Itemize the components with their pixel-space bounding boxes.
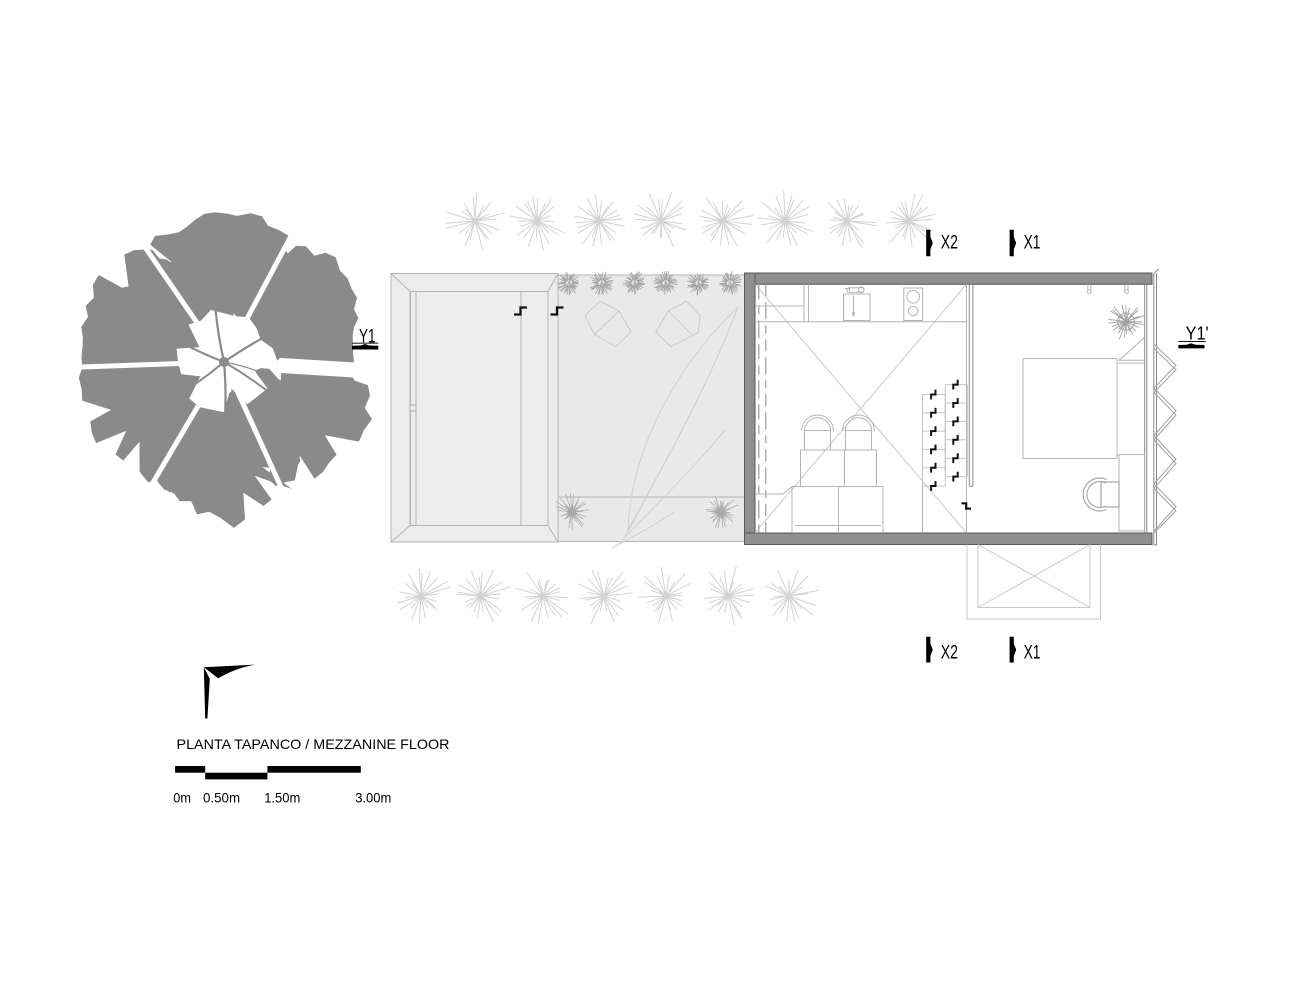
svg-text:X2: X2 — [941, 642, 958, 663]
svg-text:Y1': Y1' — [1186, 323, 1209, 344]
svg-text:PLANTA TAPANCO / MEZZANINE FLO: PLANTA TAPANCO / MEZZANINE FLOOR — [177, 737, 450, 752]
svg-text:0.50m: 0.50m — [203, 791, 240, 806]
svg-text:X1: X1 — [1024, 642, 1041, 663]
svg-text:X2: X2 — [941, 232, 958, 253]
svg-text:3.00m: 3.00m — [355, 791, 391, 806]
svg-text:1.50m: 1.50m — [264, 791, 300, 806]
svg-text:0m: 0m — [173, 791, 191, 806]
svg-text:Y1: Y1 — [359, 326, 376, 348]
svg-text:X1: X1 — [1024, 232, 1041, 253]
